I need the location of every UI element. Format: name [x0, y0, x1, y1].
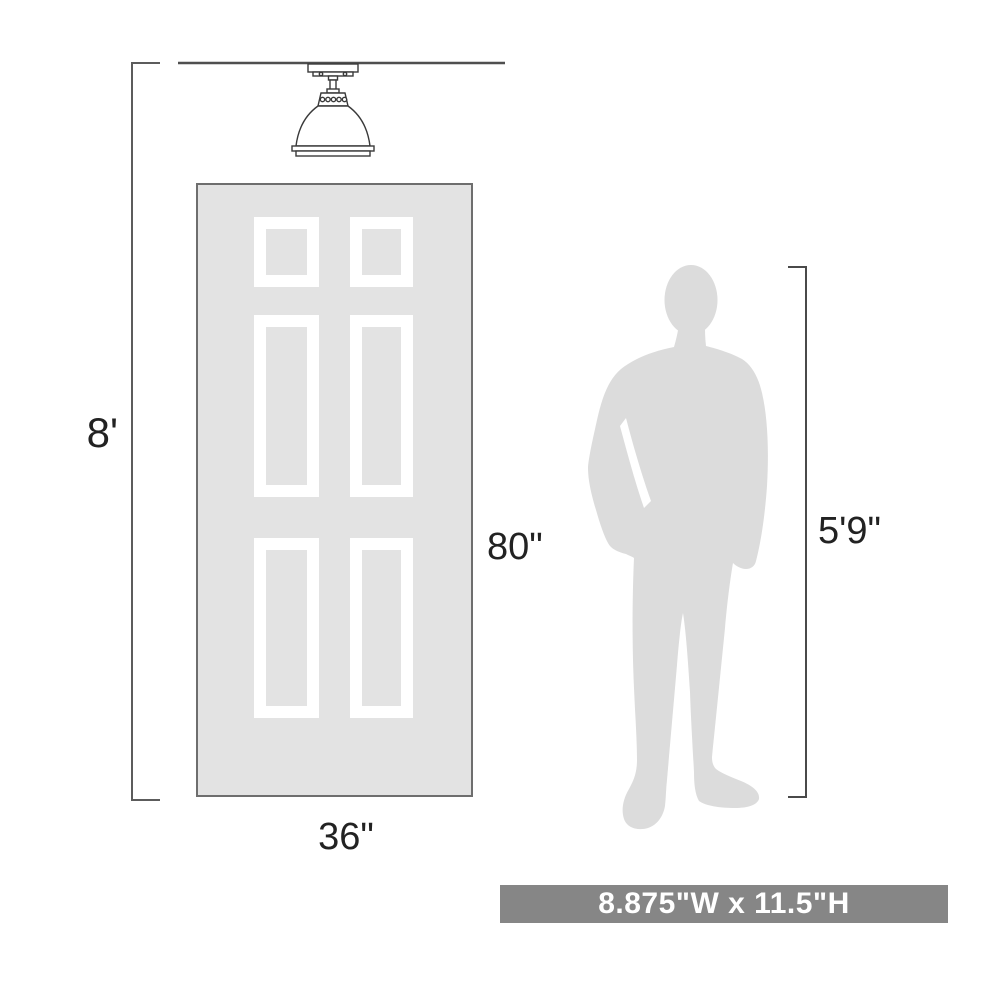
door-height-label: 80"	[487, 528, 543, 566]
door-illustration	[196, 183, 473, 797]
door-panel-top-left	[254, 217, 319, 287]
door-panel-middle-right	[350, 315, 413, 497]
product-dimension-diagram: 8' 80" 36" 5'9" 8.875"W x 11.5"H	[0, 0, 1000, 1000]
door-panel-bottom-left	[254, 538, 319, 718]
fixture-rim	[292, 146, 374, 151]
person-silhouette-icon	[588, 265, 768, 829]
fixture-canopy	[308, 64, 358, 72]
door-width-label: 36"	[296, 818, 396, 856]
fixture-dome-shade	[296, 106, 370, 146]
person-height-label: 5'9"	[818, 512, 881, 550]
fixture-size-banner: 8.875"W x 11.5"H	[500, 885, 948, 923]
ceiling-height-label: 8'	[58, 412, 118, 454]
ceiling-light-icon	[292, 64, 374, 156]
door-panel-middle-left	[254, 315, 319, 497]
door-panel-bottom-right	[350, 538, 413, 718]
ceiling-height-dimension-bracket	[132, 63, 160, 800]
door-panel-top-right	[350, 217, 413, 287]
diagram-artwork	[0, 0, 1000, 1000]
person-body	[588, 324, 768, 829]
fixture-size-text: 8.875"W x 11.5"H	[598, 887, 850, 921]
person-height-dimension-bracket	[788, 267, 806, 797]
